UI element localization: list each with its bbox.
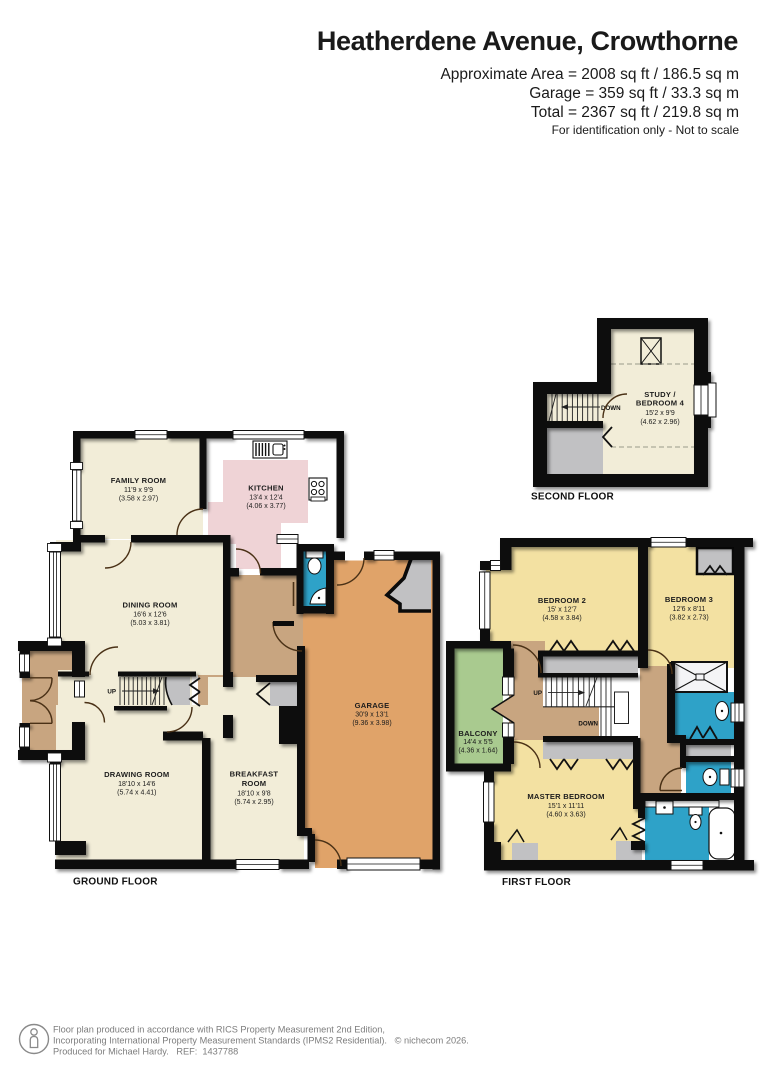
svg-text:15' x 12'7: 15' x 12'7 <box>547 607 577 614</box>
svg-text:(9.36 x 3.98): (9.36 x 3.98) <box>352 720 391 727</box>
svg-text:UP: UP <box>107 689 116 696</box>
svg-text:(4.62 x 2.96): (4.62 x 2.96) <box>640 419 679 426</box>
svg-text:BEDROOM 4: BEDROOM 4 <box>636 399 685 408</box>
svg-text:Produced for Michael Hardy.: Produced for Michael Hardy. REF: 1437788 <box>53 1047 238 1057</box>
svg-text:KITCHEN: KITCHEN <box>248 484 284 493</box>
svg-text:(3.58 x 2.97): (3.58 x 2.97) <box>119 496 158 503</box>
svg-text:GROUND FLOOR: GROUND FLOOR <box>73 877 158 888</box>
svg-text:BEDROOM 2: BEDROOM 2 <box>538 596 586 605</box>
svg-text:DOWN: DOWN <box>578 721 598 728</box>
svg-text:For identification only - Not: For identification only - Not to scale <box>552 123 740 137</box>
svg-text:UP: UP <box>533 690 542 697</box>
svg-text:(5.74 x 4.41): (5.74 x 4.41) <box>117 790 156 797</box>
svg-text:MASTER BEDROOM: MASTER BEDROOM <box>527 792 604 801</box>
svg-text:14'4 x 5'5: 14'4 x 5'5 <box>463 739 493 746</box>
svg-text:(4.36 x 1.64): (4.36 x 1.64) <box>458 748 497 755</box>
svg-text:BEDROOM 3: BEDROOM 3 <box>665 595 713 604</box>
svg-text:(3.82 x 2.73): (3.82 x 2.73) <box>669 615 708 622</box>
svg-text:Garage = 359 sq ft / 33.3 sq m: Garage = 359 sq ft / 33.3 sq m <box>529 85 739 102</box>
svg-text:ROOM: ROOM <box>242 779 267 788</box>
svg-text:Approximate Area = 2008 sq ft: Approximate Area = 2008 sq ft / 186.5 sq… <box>440 66 739 83</box>
svg-text:Floor plan produced in accorda: Floor plan produced in accordance with R… <box>53 1025 385 1035</box>
svg-text:BALCONY: BALCONY <box>458 729 497 738</box>
svg-text:11'9 x 9'9: 11'9 x 9'9 <box>124 487 153 494</box>
svg-text:DRAWING ROOM: DRAWING ROOM <box>104 770 169 779</box>
svg-text:FAMILY ROOM: FAMILY ROOM <box>111 476 167 485</box>
svg-text:(4.58 x 3.84): (4.58 x 3.84) <box>542 615 581 622</box>
svg-text:GARAGE: GARAGE <box>355 701 390 710</box>
svg-text:BREAKFAST: BREAKFAST <box>230 770 279 779</box>
svg-text:15'1 x 11'11: 15'1 x 11'11 <box>548 803 584 810</box>
svg-text:(5.74 x 2.95): (5.74 x 2.95) <box>234 799 273 806</box>
svg-text:16'6 x 12'6: 16'6 x 12'6 <box>133 612 167 619</box>
svg-text:(4.60 x 3.63): (4.60 x 3.63) <box>546 812 585 819</box>
svg-text:15'2 x 9'9: 15'2 x 9'9 <box>645 410 675 417</box>
svg-text:30'9 x 13'1: 30'9 x 13'1 <box>355 712 389 719</box>
svg-text:12'6 x 8'11: 12'6 x 8'11 <box>673 606 706 613</box>
svg-text:SECOND FLOOR: SECOND FLOOR <box>531 492 615 503</box>
svg-text:Heatherdene Avenue, Crowthorne: Heatherdene Avenue, Crowthorne <box>317 26 738 56</box>
svg-text:Incorporating International Pr: Incorporating International Property Mea… <box>53 1036 469 1046</box>
svg-text:18'10 x 9'8: 18'10 x 9'8 <box>237 791 271 798</box>
svg-text:13'4 x 12'4: 13'4 x 12'4 <box>249 495 283 502</box>
svg-text:DINING ROOM: DINING ROOM <box>122 601 177 610</box>
svg-text:Total = 2367 sq ft / 219.8 sq: Total = 2367 sq ft / 219.8 sq m <box>531 104 739 121</box>
svg-text:FIRST FLOOR: FIRST FLOOR <box>502 877 571 888</box>
svg-text:(5.03 x 3.81): (5.03 x 3.81) <box>130 620 169 627</box>
svg-text:18'10 x 14'6: 18'10 x 14'6 <box>118 781 155 788</box>
svg-text:(4.06 x 3.77): (4.06 x 3.77) <box>246 503 285 510</box>
